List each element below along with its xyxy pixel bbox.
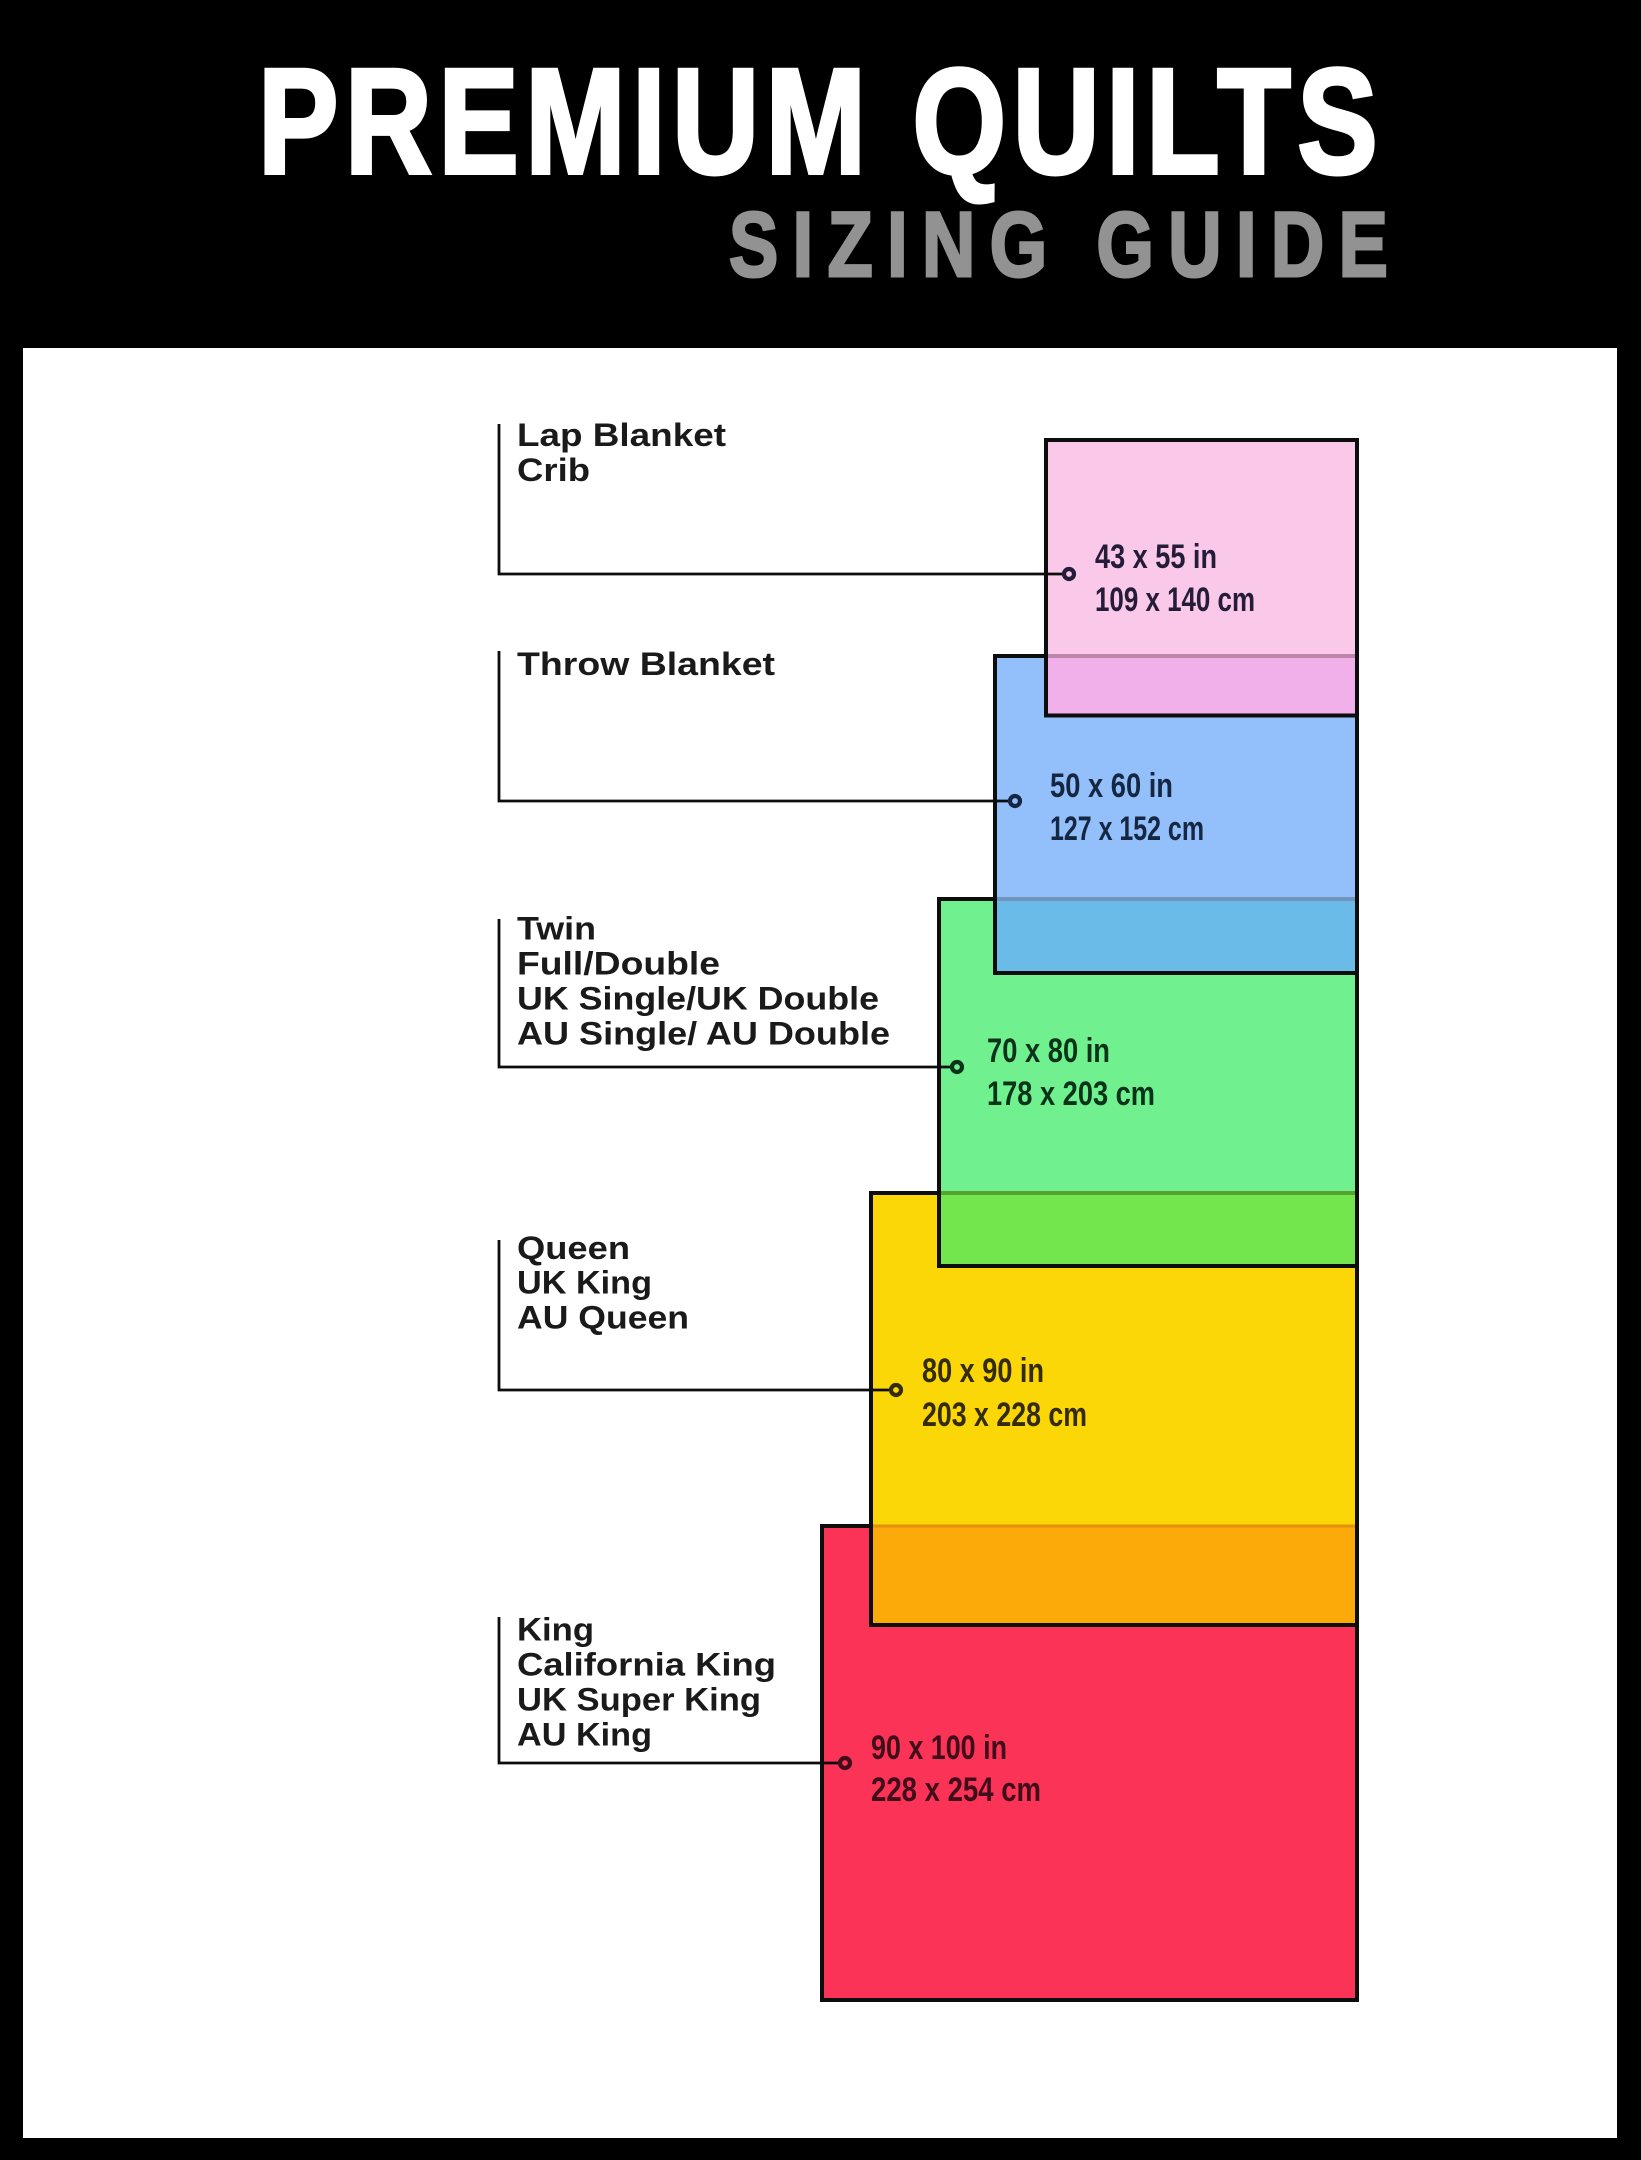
svg-text:Full/Double: Full/Double xyxy=(517,946,720,982)
svg-text:UK King: UK King xyxy=(517,1265,652,1301)
svg-text:AU Queen: AU Queen xyxy=(517,1300,689,1336)
svg-text:Crib: Crib xyxy=(517,452,590,488)
svg-text:UK Super King: UK Super King xyxy=(517,1682,761,1718)
svg-text:90 x 100 in: 90 x 100 in xyxy=(871,1729,1007,1767)
svg-text:Lap Blanket: Lap Blanket xyxy=(517,417,726,453)
svg-text:AU King: AU King xyxy=(517,1717,652,1753)
svg-text:UK Single/UK Double: UK Single/UK Double xyxy=(517,981,879,1017)
svg-text:50 x 60 in: 50 x 60 in xyxy=(1050,767,1173,805)
svg-text:80 x 90 in: 80 x 90 in xyxy=(922,1352,1044,1390)
svg-text:109 x 140 cm: 109 x 140 cm xyxy=(1095,581,1255,619)
svg-text:Twin: Twin xyxy=(517,911,596,947)
svg-text:228 x 254 cm: 228 x 254 cm xyxy=(871,1771,1041,1809)
svg-text:178 x 203 cm: 178 x 203 cm xyxy=(987,1075,1155,1113)
svg-text:Queen: Queen xyxy=(517,1230,630,1266)
svg-text:PREMIUM QUILTS: PREMIUM QUILTS xyxy=(258,37,1384,205)
svg-text:AU Single/ AU Double: AU Single/ AU Double xyxy=(517,1016,890,1052)
svg-text:43 x 55 in: 43 x 55 in xyxy=(1095,538,1217,576)
svg-text:70 x 80 in: 70 x 80 in xyxy=(987,1032,1110,1070)
svg-text:King: King xyxy=(517,1612,594,1648)
svg-text:203 x 228 cm: 203 x 228 cm xyxy=(922,1396,1087,1434)
svg-text:127 x 152 cm: 127 x 152 cm xyxy=(1050,810,1204,848)
svg-text:California King: California King xyxy=(517,1647,776,1683)
svg-text:SIZING GUIDE: SIZING GUIDE xyxy=(729,193,1402,296)
svg-text:Throw Blanket: Throw Blanket xyxy=(517,646,775,682)
